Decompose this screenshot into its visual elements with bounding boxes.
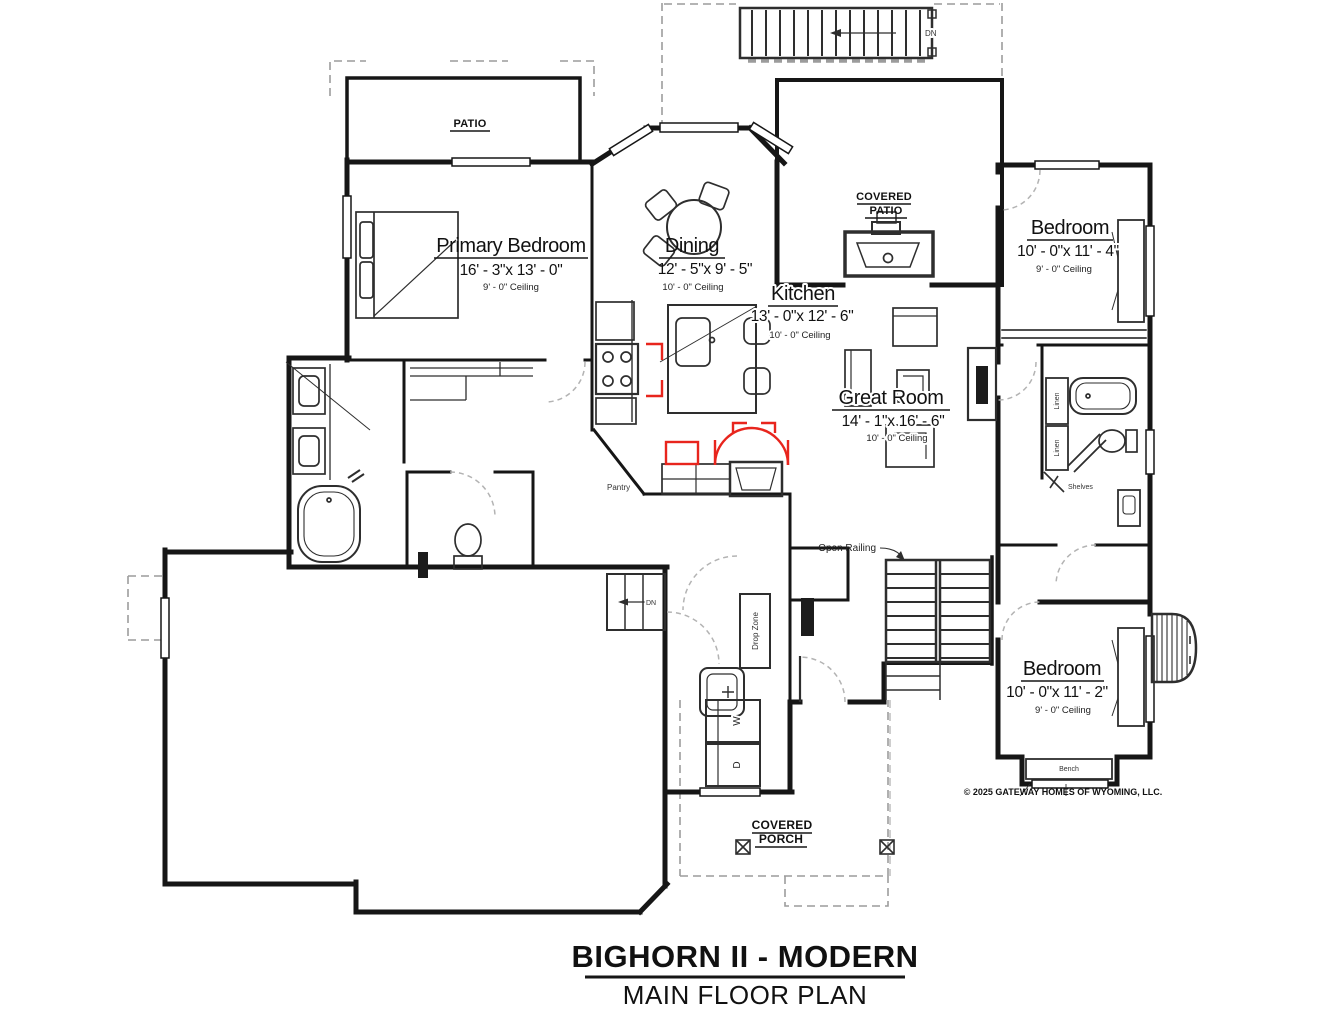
kitchen-dims: 13' - 0"x 12' - 6" (751, 308, 854, 325)
linen-label-1: Linen (1054, 392, 1061, 409)
main-stairs (886, 560, 990, 700)
patio-fireplace (845, 212, 933, 276)
primary-bedroom-ceiling: 9' - 0" Ceiling (483, 282, 539, 293)
primary-bed (356, 212, 458, 318)
kitchen-name: Kitchen (771, 283, 835, 305)
toilet (455, 524, 481, 556)
covered-porch-label-2: PORCH (759, 832, 803, 846)
bedroom-lower-ceiling: 9' - 0" Ceiling (1035, 705, 1091, 716)
washer-label: W (732, 716, 743, 726)
open-railing-label: Open Railing (818, 543, 876, 554)
dryer-label: D (732, 761, 743, 768)
closet-door-slab (801, 598, 814, 636)
exterior-fireplace (1152, 614, 1196, 682)
primary-bedroom-dims: 16' - 3"x 13' - 0" (460, 262, 563, 279)
covered-patio-label-2: PATIO (870, 205, 903, 217)
dining-ceiling: 10' - 0" Ceiling (662, 282, 723, 293)
primary-closet (410, 362, 533, 400)
floor-plan-sheet: PATIO COVERED PATIO COVERED PORCH Primar… (0, 0, 1320, 1020)
bedroom-lower-bed (1112, 628, 1144, 726)
bedroom-lower-name: Bedroom (1023, 658, 1101, 680)
dn-top-stairs-label: DN (925, 29, 937, 38)
drop-zone-label: Drop Zone (751, 612, 760, 650)
bedroom-upper-dims: 10' - 0"x 11' - 4" (1017, 243, 1119, 260)
primary-bath-fixtures (286, 362, 482, 578)
dining-dims: 12' - 5"x 9' - 5" (658, 261, 753, 278)
bedroom-upper-bed (1112, 220, 1144, 322)
dining-name: Dining (665, 235, 719, 257)
toilet (1099, 430, 1125, 452)
patio-label: PATIO (454, 118, 487, 130)
bedroom-lower-dims: 10' - 0"x 11' - 2" (1006, 684, 1108, 701)
shower-head (348, 470, 364, 482)
hearth-cabinet (730, 462, 782, 496)
label-underlines (434, 131, 1113, 977)
bedroom-upper-name: Bedroom (1031, 217, 1109, 239)
plan-title: BIGHORN II - MODERN (571, 939, 918, 974)
red-door-swing (715, 428, 752, 465)
windows (161, 122, 1154, 796)
vanity-sink (293, 428, 325, 474)
great-room-dims: 14' - 1"x 16' - 6" (842, 413, 945, 430)
copyright-text: © 2025 GATEWAY HOMES OF WYOMING, LLC. (964, 787, 1163, 797)
roof-overhang-lines (128, 3, 1002, 912)
red-cabinet-box (666, 442, 698, 464)
top-deck-stairs (740, 8, 936, 58)
labels: PATIO COVERED PATIO COVERED PORCH Primar… (436, 29, 1162, 1010)
red-door-swing (752, 428, 788, 465)
great-room-ceiling: 10' - 0" Ceiling (866, 433, 927, 444)
red-range-bracket (646, 344, 662, 396)
floor-plan-drawing: PATIO COVERED PATIO COVERED PORCH Primar… (0, 0, 1320, 1020)
primary-bedroom-name: Primary Bedroom (436, 235, 586, 257)
garage-entry-steps (607, 574, 665, 630)
covered-patio-label-1: COVERED (856, 191, 912, 203)
pantry-label: Pantry (607, 483, 630, 492)
plan-subtitle: MAIN FLOOR PLAN (623, 980, 867, 1010)
great-room-name: Great Room (839, 387, 944, 409)
vanity-sink (293, 368, 325, 414)
covered-porch-label-1: COVERED (752, 818, 813, 832)
shelves-label: Shelves (1068, 484, 1093, 491)
dn-garage-steps-label: DN (646, 600, 656, 607)
bedroom-upper-ceiling: 9' - 0" Ceiling (1036, 264, 1092, 275)
island-sink (676, 318, 710, 366)
fixtures (286, 181, 1196, 854)
bath-vanity (1118, 490, 1140, 526)
linen-label-2: Linen (1054, 439, 1061, 456)
shower-door (1068, 434, 1106, 472)
kitchen-ceiling: 10' - 0" Ceiling (769, 330, 830, 341)
bench-label: Bench (1059, 766, 1079, 773)
